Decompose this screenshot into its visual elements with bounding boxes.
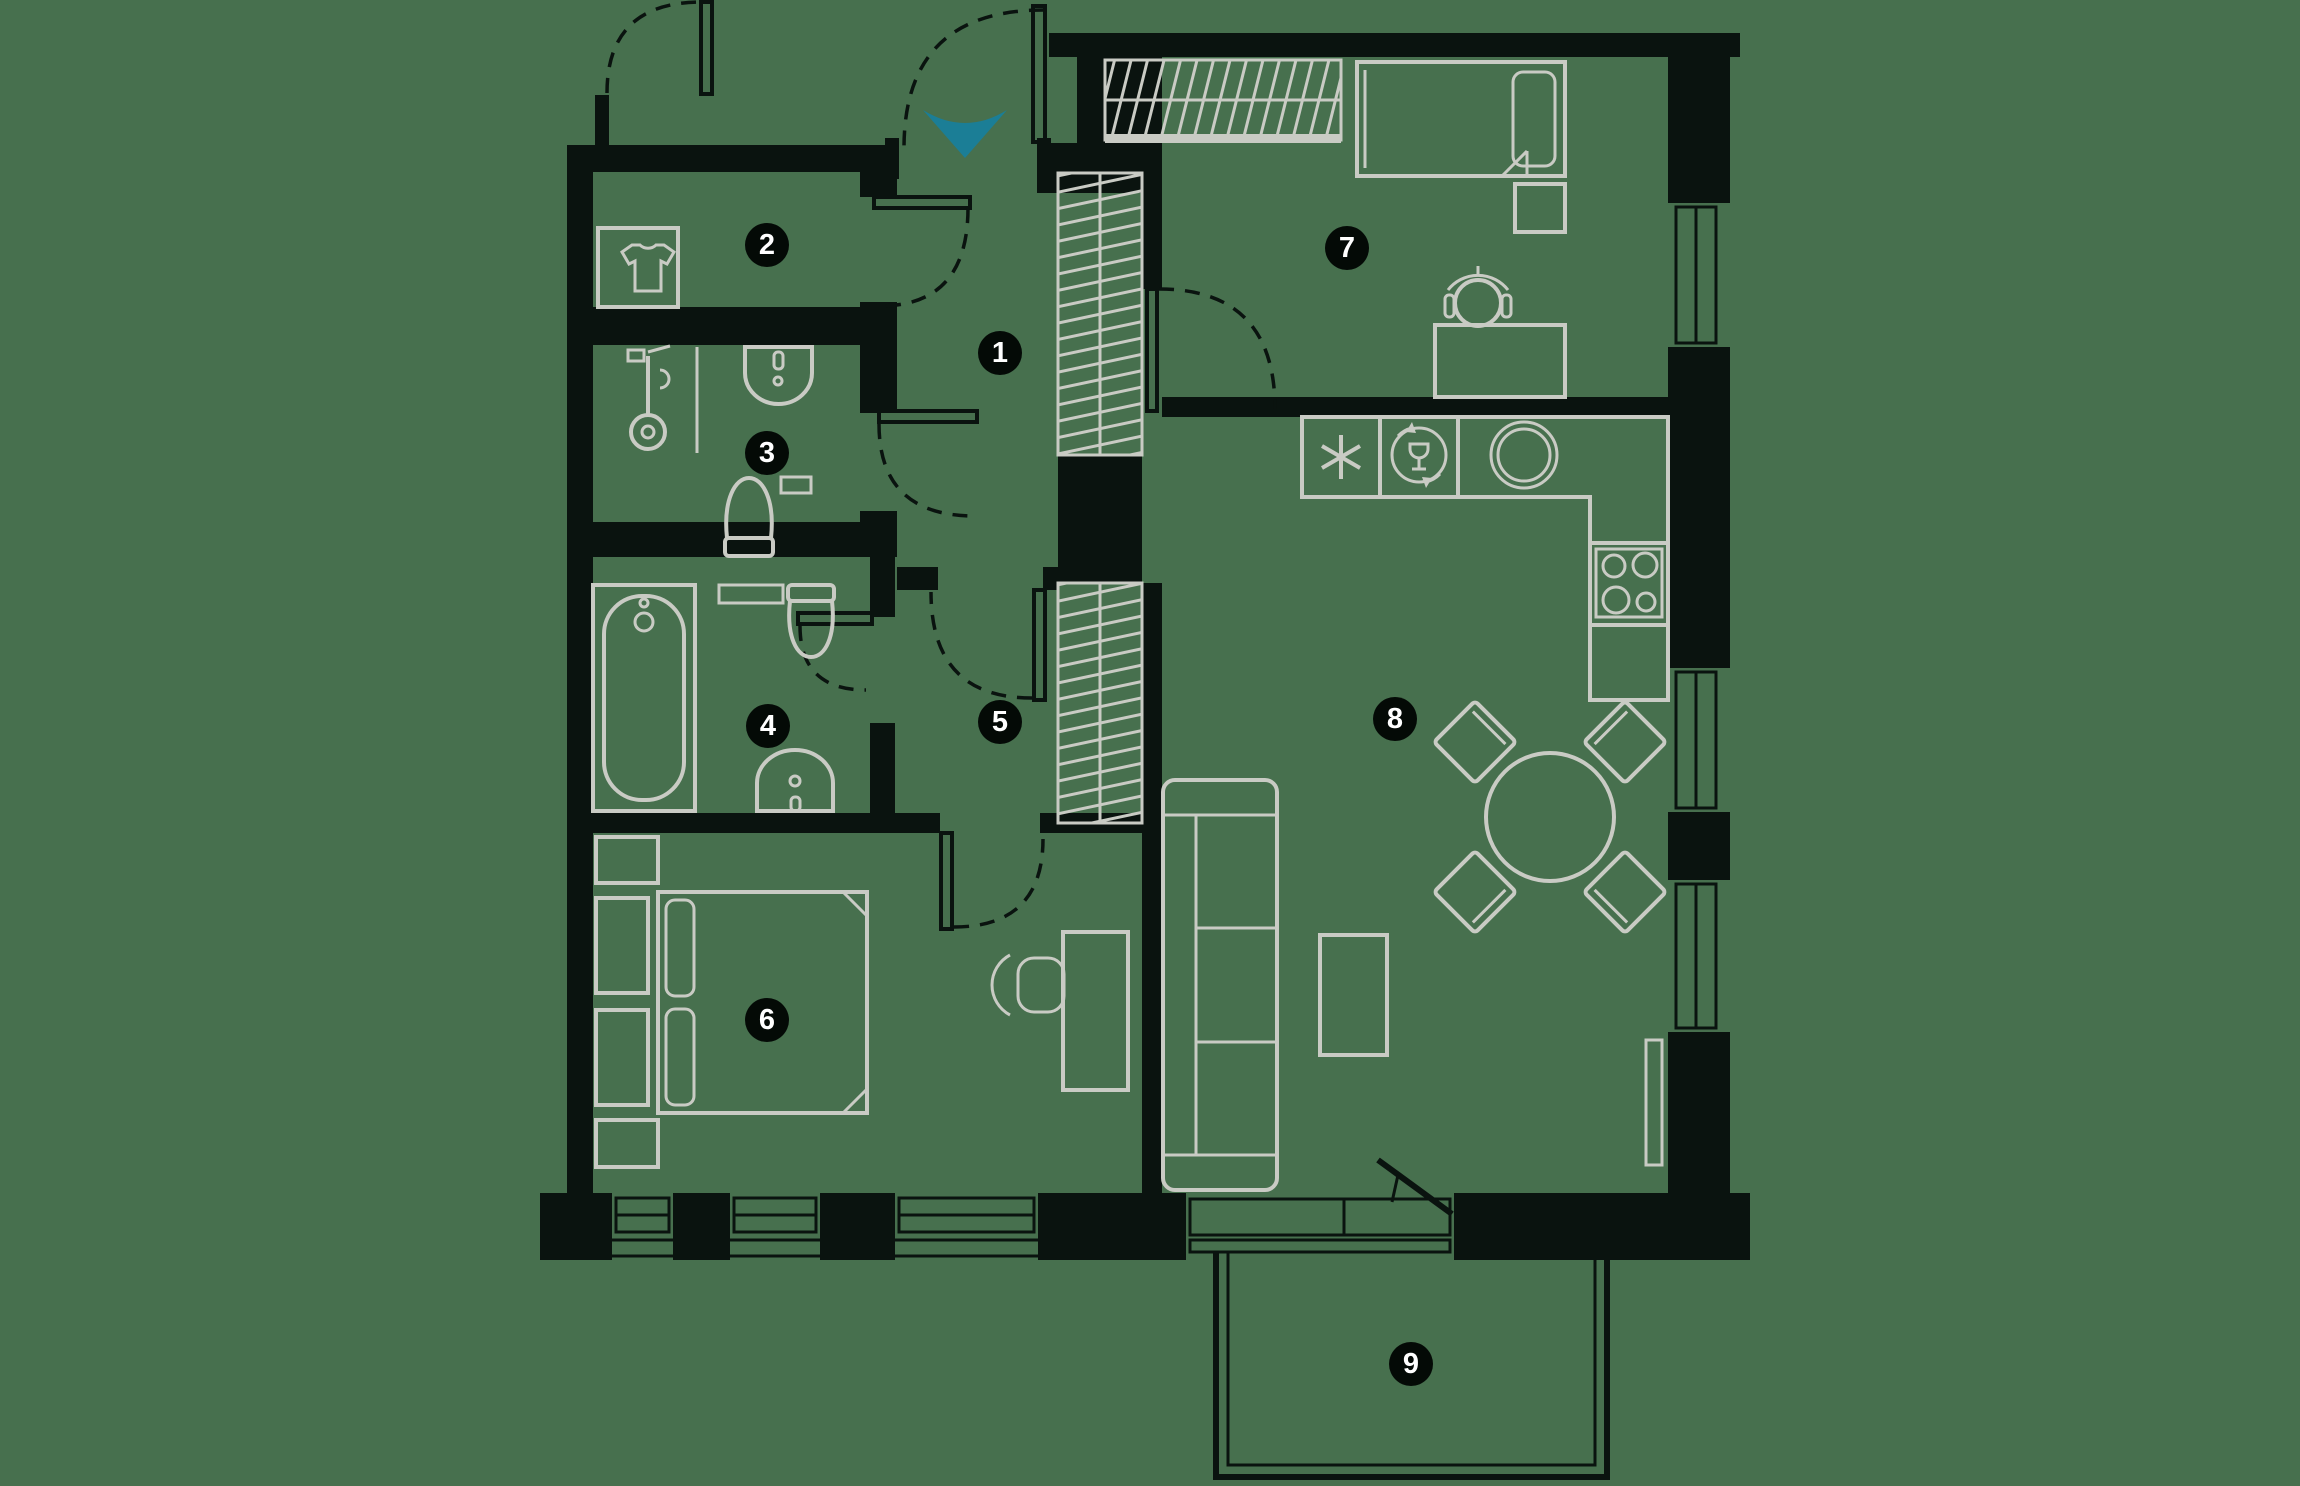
sink-icon-room4	[757, 750, 833, 811]
dining-set	[1434, 701, 1666, 933]
door-room3	[879, 411, 977, 516]
floor-plan-canvas: 1 2 3 4 5 6 7 8 9	[0, 0, 2300, 1486]
pillow	[666, 900, 694, 996]
door-room2	[874, 197, 970, 306]
balcony-door	[1190, 1160, 1452, 1252]
pillow	[1513, 72, 1555, 166]
shower-icon	[628, 346, 670, 449]
window-bottom-middle	[726, 1198, 824, 1256]
room-badge-hallway: 1	[978, 331, 1022, 375]
entrance-arrow-icon	[923, 110, 1007, 158]
bedside-cabinet	[596, 1010, 648, 1105]
coffee-table	[1320, 935, 1387, 1055]
room-badge-bedroom-main: 6	[745, 998, 789, 1042]
nightstand	[596, 1120, 658, 1167]
room-badge-balcony: 9	[1389, 1342, 1433, 1386]
window-right-living-lower	[1676, 884, 1716, 1028]
window-bottom-right	[891, 1198, 1042, 1256]
toilet-icon-room4	[788, 585, 834, 657]
shelf-room4	[719, 585, 783, 603]
wardrobe-hallway	[1058, 173, 1142, 455]
room-badge-corridor: 5	[978, 700, 1022, 744]
pillow	[666, 1009, 694, 1105]
balcony-door-leaf	[1378, 1160, 1452, 1214]
closet-room2	[598, 228, 678, 307]
chair-room6	[992, 955, 1064, 1015]
nightstand-room7	[1515, 184, 1565, 232]
bedroom6-furniture	[596, 837, 1128, 1167]
shirt-icon	[622, 245, 674, 291]
room-badge-shower-room: 3	[745, 431, 789, 475]
room-badge-kitchen-living: 8	[1373, 697, 1417, 741]
sofa	[1163, 780, 1277, 1190]
kitchen-sink-icon	[1491, 422, 1557, 488]
exterior-storage-door	[607, 2, 712, 94]
room-badge-bathroom: 4	[746, 704, 790, 748]
nightstand	[596, 837, 658, 883]
bathtub-icon	[593, 585, 695, 811]
dishwasher-icon	[1392, 422, 1446, 488]
door-room7	[1147, 289, 1275, 411]
shelf-room3	[781, 477, 811, 493]
kitchen-counter	[1302, 417, 1668, 700]
room-badge-wardrobe-room: 2	[745, 223, 789, 267]
tv-console	[1646, 1040, 1662, 1165]
wardrobe-room7	[1105, 60, 1341, 143]
sink-icon-room3	[745, 347, 812, 404]
window-right-room7	[1676, 207, 1716, 343]
hob-icon	[1596, 549, 1662, 617]
door-hall-corridor	[931, 590, 1045, 700]
window-right-living-upper	[1676, 672, 1716, 808]
room-badge-bedroom-second: 7	[1325, 226, 1369, 270]
walls	[540, 33, 1750, 1260]
door-room6	[941, 833, 1043, 929]
dining-table	[1486, 753, 1614, 881]
office-chair-room7	[1445, 266, 1511, 326]
desk-room6	[1063, 932, 1128, 1090]
window-bottom-left	[608, 1198, 677, 1256]
door-room4	[798, 613, 872, 690]
bedroom7-furniture	[1357, 62, 1565, 397]
floor-plan-drawing	[0, 0, 2300, 1486]
bedside-cabinet	[596, 898, 648, 993]
single-bed	[1357, 62, 1565, 176]
wardrobe-corridor	[1058, 583, 1142, 823]
desk-room7	[1435, 325, 1565, 397]
kitchen-fixtures	[1302, 417, 1668, 700]
fridge-icon	[1322, 435, 1360, 479]
